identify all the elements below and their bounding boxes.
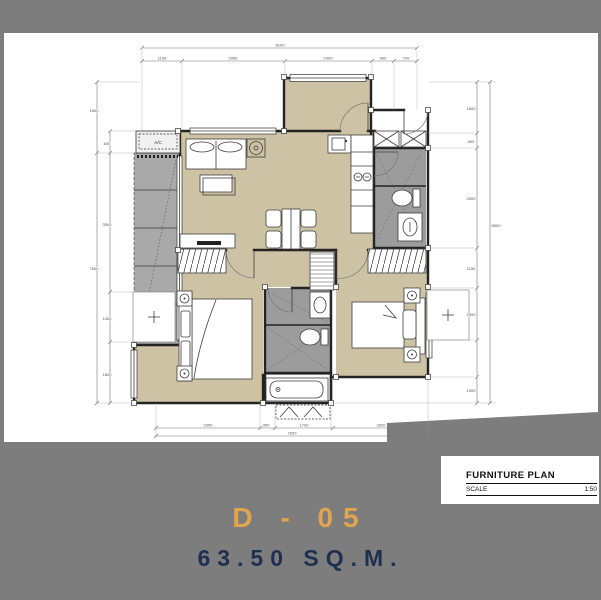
wardrobe-bedroom2 (368, 249, 426, 273)
svg-text:8500: 8500 (492, 223, 502, 228)
svg-text:8100: 8100 (276, 43, 286, 48)
svg-text:1400: 1400 (467, 312, 477, 317)
linen-closet (310, 252, 334, 290)
svg-text:3500: 3500 (103, 222, 113, 227)
sofa (186, 139, 246, 169)
ac-label: A/C (154, 140, 162, 145)
svg-text:7600: 7600 (288, 431, 298, 436)
tv-console (180, 234, 235, 248)
svg-text:2950: 2950 (229, 56, 239, 61)
titleblock: FURNITURE PLAN SCALE 1:50 (441, 456, 599, 504)
vanity-2 (310, 292, 330, 318)
bathtub (266, 378, 328, 401)
svg-text:900: 900 (468, 139, 475, 144)
scale-value: 1:50 (584, 486, 597, 493)
svg-text:2950: 2950 (204, 423, 214, 428)
svg-text:350: 350 (263, 423, 270, 428)
titleblock-rule (466, 483, 597, 484)
svg-text:700: 700 (403, 56, 410, 61)
svg-text:1150: 1150 (158, 56, 167, 61)
screenshot-root: { "header": { "unit_code": "D - 05", "un… (0, 0, 601, 600)
svg-text:900: 900 (380, 56, 387, 61)
svg-text:7600: 7600 (90, 266, 100, 271)
svg-text:2400: 2400 (324, 56, 334, 61)
coffee-table (200, 175, 235, 195)
bed-master (177, 291, 252, 381)
svg-text:600: 600 (104, 141, 111, 146)
svg-text:1150: 1150 (467, 266, 476, 271)
svg-text:1700: 1700 (300, 423, 310, 428)
ac-ledge-bottom (276, 405, 330, 419)
shaft-boxes (374, 131, 426, 147)
svg-text:2500: 2500 (467, 196, 477, 201)
unit-area: 63.50 SQ.M. (0, 545, 601, 572)
unit-code: D - 05 (0, 502, 601, 534)
svg-text:1000: 1000 (467, 388, 477, 393)
svg-text:1600: 1600 (467, 106, 477, 111)
ac-ledge: A/C (136, 131, 180, 157)
titleblock-title: FURNITURE PLAN (466, 471, 597, 481)
svg-text:1600: 1600 (90, 108, 100, 113)
wardrobe-master (178, 249, 226, 273)
toilet-2 (300, 329, 328, 345)
scale-label: SCALE (466, 486, 487, 493)
toilet-1 (392, 189, 420, 207)
vanity-1 (398, 213, 422, 241)
ledge-right (427, 290, 469, 340)
svg-text:2600: 2600 (377, 423, 387, 428)
titleblock-rule2 (466, 495, 597, 496)
svg-text:1400: 1400 (103, 316, 113, 321)
svg-text:1800: 1800 (103, 372, 113, 377)
titleblock-scale-row: SCALE 1:50 (466, 486, 597, 493)
ledge-left (133, 292, 175, 342)
